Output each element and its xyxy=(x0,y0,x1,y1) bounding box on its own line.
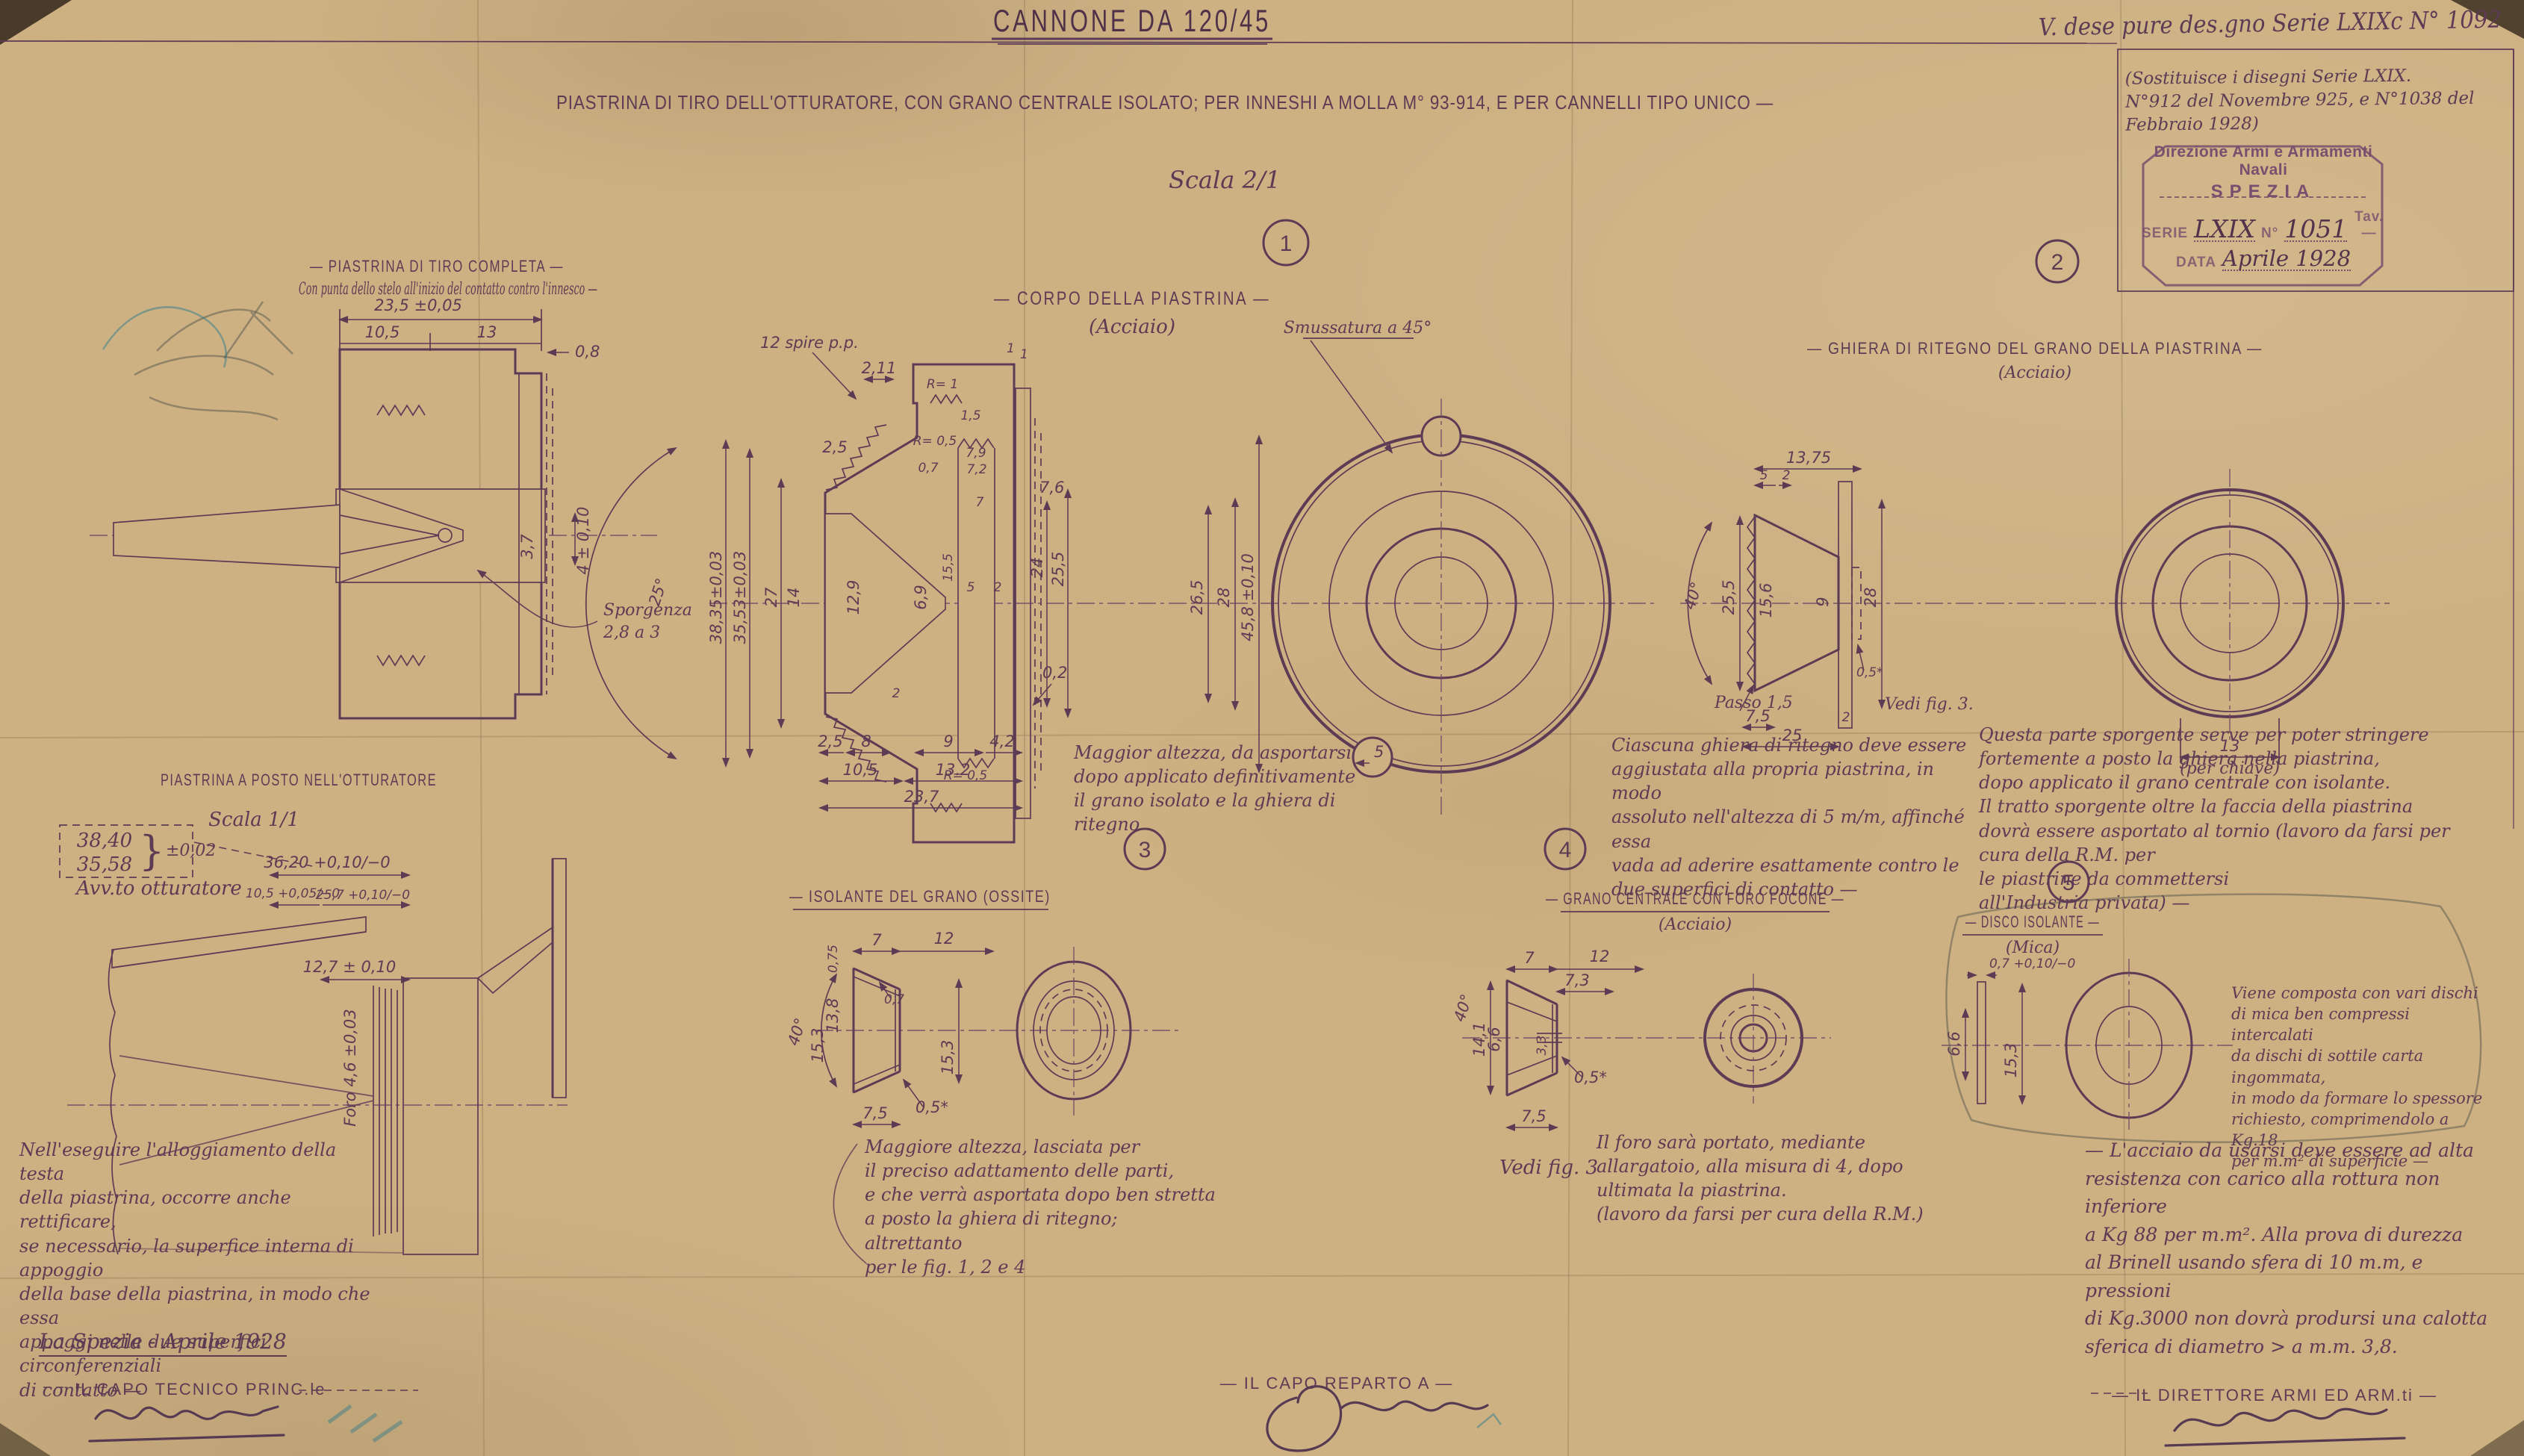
dim: 25,5 xyxy=(1720,580,1738,615)
stamp-data-value: Aprile 1928 xyxy=(2222,249,2351,271)
fig1-number: 1 xyxy=(1280,231,1293,256)
fig2-note-left: Ciascuna ghiera di ritegno deve essere a… xyxy=(1611,733,1985,901)
dim: 0,8 xyxy=(575,343,600,361)
dim: 6,9 xyxy=(912,585,930,609)
dim: 1,5 xyxy=(960,408,980,423)
fig5-material: (Mica) xyxy=(2006,939,2060,957)
dim: 0,7 +0,10/−0 xyxy=(1989,956,2075,971)
otturatore-scale: Scala 1/1 xyxy=(208,809,299,831)
fig1-title: — CORPO DELLA PIASTRINA — xyxy=(994,288,1270,309)
dim: 13 xyxy=(477,323,497,341)
dim: 6,6 xyxy=(1945,1031,1963,1056)
otturatore-note: Nell'eseguire l'alloggiamento della test… xyxy=(19,1138,385,1402)
dim: 9 xyxy=(1814,597,1832,606)
pencil-scribbles xyxy=(103,302,293,420)
dim: 12 xyxy=(1590,948,1610,965)
dim: 4,2 xyxy=(989,732,1014,750)
fig-tiro-title: — PIASTRINA DI TIRO COMPLETA — xyxy=(310,257,564,276)
dim: R= 0,5 xyxy=(913,434,957,449)
fig2-ghiera-di-ritegno: 2 — GHIERA DI RITEGNO DEL GRANO DELLA PI… xyxy=(1680,240,2390,778)
fig-tiro-dimensions: 23,5 ±0,05 10,5 13 0,8 3,7 4 ± 0,10 Spor… xyxy=(340,296,692,642)
dim: 2 xyxy=(1782,468,1791,483)
dim: 15,3 xyxy=(2002,1043,2020,1078)
fig2-vedi: Vedi fig. 3. xyxy=(1885,695,1974,714)
blue-pencil-mark-left xyxy=(329,1406,402,1441)
dim: 23,5 ±0,05 xyxy=(374,296,462,314)
dim: ±0,02 xyxy=(166,841,216,860)
dim: 38,40 xyxy=(77,830,132,852)
dim: 15,6 xyxy=(1757,583,1775,618)
dim: 38,35±0,03 xyxy=(707,551,725,644)
signature-capo-reparto xyxy=(1267,1387,1488,1451)
drawing-subtitle: PIASTRINA DI TIRO DELL'OTTURATORE, CON G… xyxy=(556,91,1774,113)
dim: 35,53±0,03 xyxy=(731,551,749,644)
dim: 15,5 xyxy=(941,553,956,582)
dim: 2 xyxy=(892,686,901,701)
dim: 7,5 xyxy=(1745,707,1770,725)
fig3-note: Maggiore altezza, lasciata per il precis… xyxy=(865,1135,1216,1279)
fig1-material: (Acciaio) xyxy=(1089,316,1175,338)
fig3-section-view xyxy=(815,968,1180,1092)
dim: 2,5 xyxy=(822,438,847,456)
dim: 25,5 xyxy=(1049,552,1067,587)
fig3-front-view xyxy=(1017,947,1131,1116)
dim: 2 xyxy=(994,580,1002,595)
dim: 5 xyxy=(967,580,975,595)
dim: 15,3 xyxy=(809,1028,827,1063)
dim: 27 xyxy=(762,587,780,607)
fig5-title: — DISCO ISOLANTE — xyxy=(1965,912,2100,931)
dim: 28 xyxy=(1215,588,1233,608)
fig5-dimensions: 0,7 +0,10/−0 6,6 15,3 xyxy=(1945,956,2075,1104)
dim: 6,6 xyxy=(1485,1027,1503,1051)
fig2-note-right: Questa parte sporgente serve per poter s… xyxy=(1979,723,2464,915)
corner-shadow-bottom-right xyxy=(2470,1420,2524,1456)
fig2-number: 2 xyxy=(2051,250,2064,275)
dim-sporgenza-value: 2,8 a 3 xyxy=(603,623,660,642)
dim: Foro 4,6 ±0,03 xyxy=(341,1009,359,1127)
dim: 10,5 xyxy=(365,323,400,341)
fig-tiro-drawing xyxy=(90,349,657,718)
dim: 0,5* xyxy=(916,1098,948,1116)
dim: 7 xyxy=(976,495,984,510)
dim: 7,9 xyxy=(966,446,986,461)
dim: 7,2 xyxy=(966,462,986,477)
dim: 9 xyxy=(943,732,953,750)
fig5-section-view xyxy=(1942,982,2233,1104)
footer: IL CAPO TECNICO PRINC.le — IL CAPO REPAR… xyxy=(43,1374,2437,1451)
dim: 0,5* xyxy=(1574,1068,1607,1086)
dim: 5 xyxy=(1760,468,1768,483)
dim: 2 xyxy=(1842,710,1850,725)
dim: 2,11 xyxy=(862,359,897,377)
fig1-smussatura-callout: Smussatura a 45° xyxy=(1284,319,1432,337)
dim: 7,5 xyxy=(1521,1107,1546,1125)
fig2-title: — GHIERA DI RITEGNO DEL GRANO DELLA PIAS… xyxy=(1807,339,2263,358)
dim: 13,75 xyxy=(1786,449,1831,467)
blue-pencil-mark-center xyxy=(1477,1414,1501,1428)
dim: 28 xyxy=(1862,588,1880,608)
dim: 12 spire p.p. xyxy=(760,334,859,352)
signature-label-capo-reparto: — IL CAPO REPARTO A — xyxy=(1220,1374,1454,1393)
dim: 14 xyxy=(785,588,803,608)
dim: 0,7 xyxy=(884,992,904,1007)
dim: 0,5* xyxy=(1856,665,1883,680)
stamp-tav-label: Tav.— xyxy=(2353,209,2385,242)
dim: 15,3 xyxy=(939,1040,957,1075)
dim: 23,7 xyxy=(904,788,939,806)
drawing-title: CANNONE DA 120/45 xyxy=(993,3,1271,38)
dim: 13.2 xyxy=(936,761,971,779)
signature-label-direttore: — IL DIRETTORE ARMI ED ARM.ti — xyxy=(2112,1386,2437,1404)
dim: 40° xyxy=(784,1015,809,1048)
corner-shadow-bottom-left xyxy=(0,1423,51,1456)
dim: 7,6 xyxy=(1039,479,1064,497)
stamp-office-name: Direzione Armi e Armamenti Navali xyxy=(2142,143,2385,179)
stamp-n-value: 1051 xyxy=(2284,218,2347,242)
steel-specification-note: — L'acciaio da usarsi deve essere ad alt… xyxy=(2085,1136,2503,1360)
dim: 1 xyxy=(1007,341,1015,356)
dim: 7,3 xyxy=(1564,971,1589,989)
dim: 26,5 xyxy=(1188,580,1206,615)
dim: 4 ± 0,10 xyxy=(574,506,592,574)
dim: 12 xyxy=(934,930,954,948)
dim: 12,9 xyxy=(845,580,862,615)
fig4-note: Il foro sarà portato, mediante allargato… xyxy=(1597,1130,1940,1227)
otturatore-title: PIASTRINA A POSTO NELL'OTTURATORE xyxy=(161,771,437,789)
replaces-note: (Sostituisce i disegni Serie LXIX. N°912… xyxy=(2125,63,2514,137)
dim: 24 xyxy=(1028,558,1046,578)
brace: } xyxy=(139,827,164,874)
fig3-title: — ISOLANTE DEL GRANO (OSSITE) xyxy=(789,887,1051,906)
dim: 13,8 xyxy=(824,998,842,1033)
dim: R= 1 xyxy=(927,377,958,392)
stamp-serie-label: SERIE xyxy=(2142,225,2188,242)
dim: 10,5 xyxy=(843,761,878,779)
dim: 0,2 xyxy=(1042,664,1067,682)
dim: 25,7 +0,10/−0 xyxy=(316,888,410,903)
dim: 3,3 xyxy=(1535,1035,1549,1055)
top-right-annotation: V. dese pure des.gno Serie LXIXc N° 1092 xyxy=(2039,5,2502,42)
dim: 8 xyxy=(861,732,871,750)
fig2-section-view xyxy=(1680,482,2390,728)
dim: 7,5 xyxy=(862,1104,887,1122)
dim: 2,5 xyxy=(818,732,842,750)
fig3-number: 3 xyxy=(1139,838,1151,862)
fig4-vedi: Vedi fig. 3 xyxy=(1499,1157,1598,1179)
place-and-date: La Spezia - Aprile 1928 xyxy=(39,1329,287,1357)
dim: 7 xyxy=(871,931,882,949)
dim: 40° xyxy=(1450,992,1476,1024)
fig-piastrina-di-tiro: — PIASTRINA DI TIRO COMPLETA — Con punta… xyxy=(90,257,692,718)
dim: 0,75 xyxy=(826,945,841,973)
signature-direttore xyxy=(2166,1409,2405,1446)
fig1-note: Maggior altezza, da asportarsi dopo appl… xyxy=(1074,741,1425,837)
dim: 7 xyxy=(1524,949,1535,967)
fig4-front-view xyxy=(1705,974,1802,1104)
dim: 45,8 ±0,10 xyxy=(1239,553,1257,641)
fig2-material: (Acciaio) xyxy=(1998,364,2071,382)
scale-note: Scala 2/1 xyxy=(1169,166,1281,194)
dim-avvto: Avv.to otturatore xyxy=(75,877,242,900)
dim: 0,7 xyxy=(918,461,938,476)
stamp-n-label: N° xyxy=(2261,225,2278,242)
stamp-city: SPEZIA xyxy=(2142,181,2385,202)
dim: 35,58 xyxy=(77,853,132,876)
dim: 36,20 +0,10/−0 xyxy=(264,853,390,871)
stamp-data-label: DATA xyxy=(2176,255,2216,271)
dim: 3,7 xyxy=(518,534,536,559)
dim: 1 xyxy=(1020,347,1028,362)
corner-shadow-top-left xyxy=(0,0,72,45)
signature-capo-tecnico xyxy=(90,1407,284,1441)
stamp-serie-value: LXIX xyxy=(2194,218,2255,242)
dim: 12,7 ± 0,10 xyxy=(303,958,396,976)
blueprint-sheet: CANNONE DA 120/45 V. dese pure des.gno S… xyxy=(0,0,2524,1456)
office-stamp: Direzione Armi e Armamenti Navali SPEZIA… xyxy=(2142,143,2385,271)
fig4-material: (Acciaio) xyxy=(1659,915,1732,934)
fig2-front-view xyxy=(2116,469,2343,741)
dim: 40° xyxy=(1680,579,1706,612)
fig4-number: 4 xyxy=(1559,838,1572,862)
